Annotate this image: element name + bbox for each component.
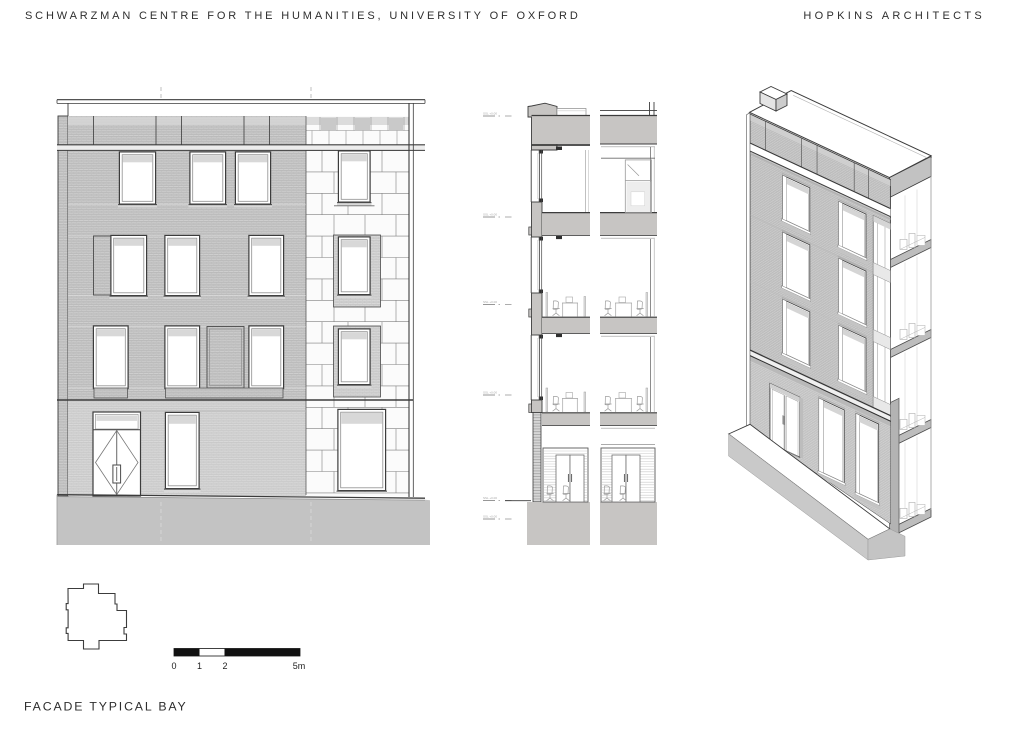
svg-text:SSL +0.00: SSL +0.00 [483, 111, 497, 115]
svg-text:SSL +0.00: SSL +0.00 [483, 514, 497, 518]
svg-text:SSL +0.00: SSL +0.00 [483, 212, 497, 216]
svg-text:2: 2 [222, 661, 227, 671]
svg-text:5m: 5m [293, 661, 306, 671]
svg-text:1: 1 [197, 661, 202, 671]
svg-text:0: 0 [171, 661, 176, 671]
svg-text:HOPKINS ARCHITECTS: HOPKINS ARCHITECTS [803, 10, 985, 22]
svg-text:SCHWARZMAN CENTRE FOR THE HUMA: SCHWARZMAN CENTRE FOR THE HUMANITIES, UN… [25, 10, 581, 22]
svg-text:FACADE TYPICAL BAY: FACADE TYPICAL BAY [24, 700, 188, 714]
svg-text:SSL +0.00: SSL +0.00 [483, 390, 497, 394]
svg-text:SSL +0.00: SSL +0.00 [483, 300, 497, 304]
svg-text:SSL +0.00: SSL +0.00 [483, 496, 497, 500]
